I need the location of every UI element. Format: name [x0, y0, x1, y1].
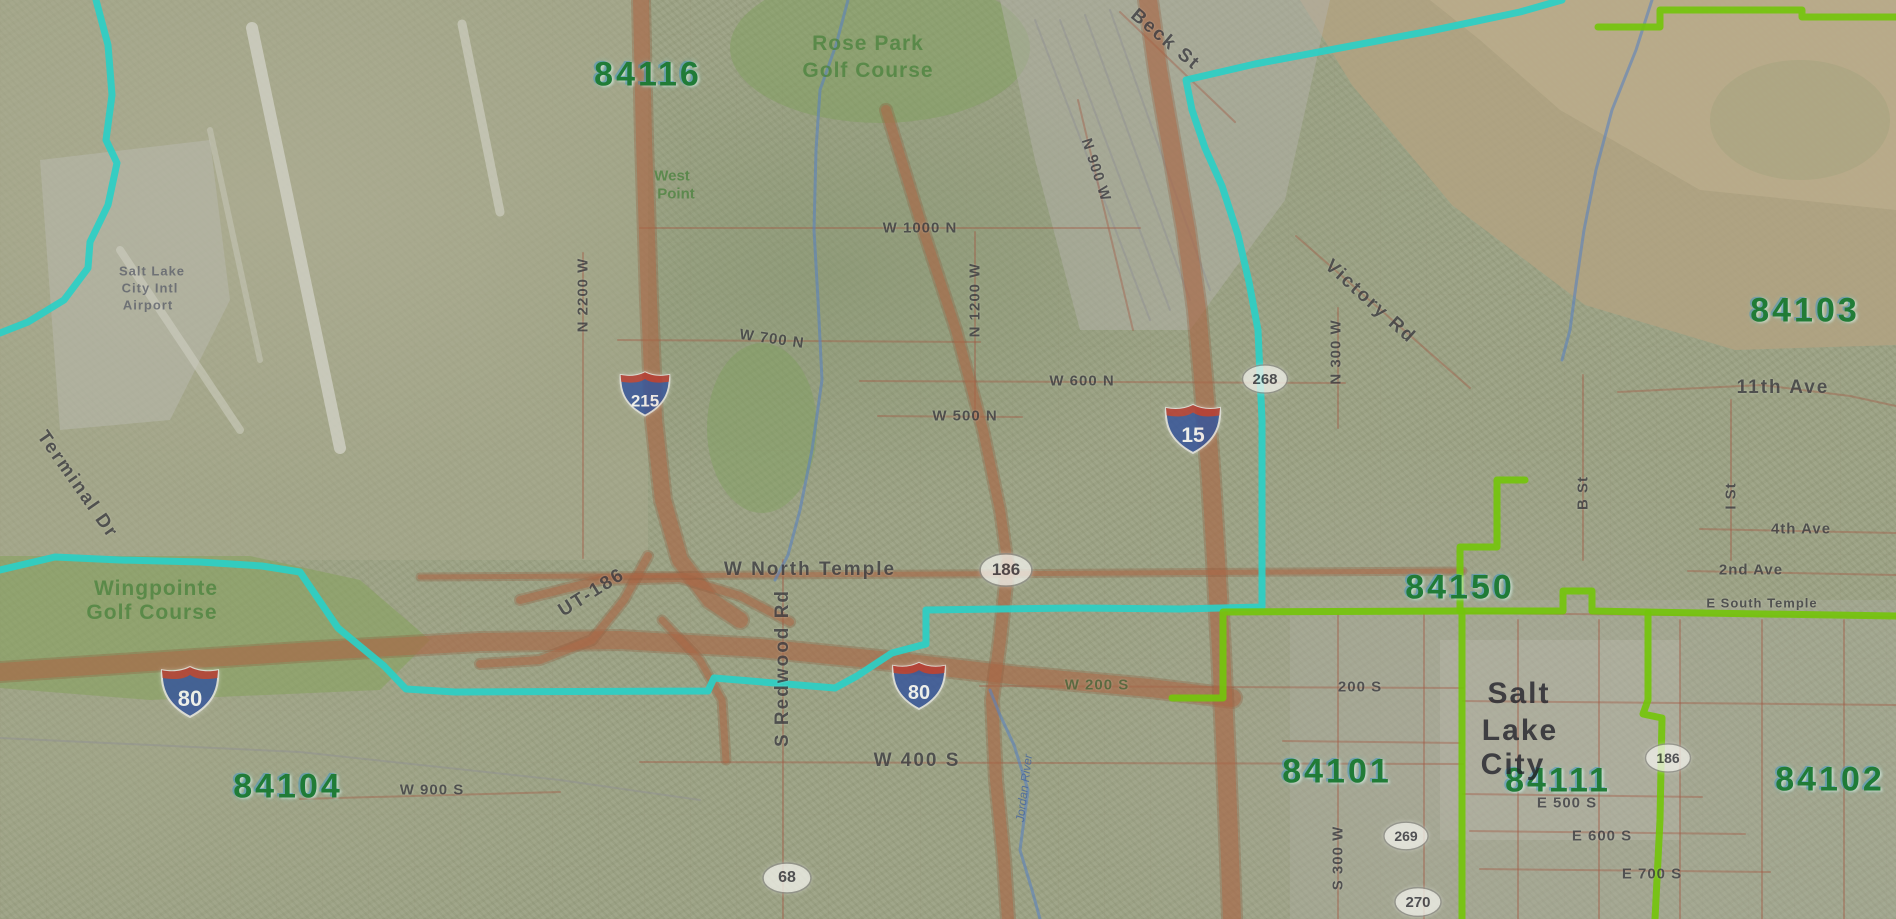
street-label-w-700-n: W 700 N — [738, 326, 805, 352]
street-label-2nd-ave: 2nd Ave — [1719, 562, 1783, 579]
city-label-salt: Salt — [1487, 677, 1550, 711]
state-route-shield-268-number: 268 — [1241, 364, 1289, 394]
street-label-w-900-s: W 900 S — [400, 782, 465, 799]
interstate-shield-80-west-number: 80 — [158, 664, 222, 726]
state-route-shield-270-number: 270 — [1394, 886, 1442, 918]
state-route-shield-270: 270 — [1394, 886, 1442, 918]
street-label-e-600-s: E 600 S — [1572, 828, 1632, 845]
street-label-e-500-s: E 500 S — [1537, 795, 1597, 812]
street-label-w-1000-n: W 1000 N — [883, 220, 958, 237]
street-label-w-400-s: W 400 S — [874, 750, 961, 772]
street-label-n-2200-w: N 2200 W — [575, 258, 592, 333]
zip-label-84103: 84103 — [1750, 292, 1860, 331]
street-label-11th-ave: 11th Ave — [1737, 377, 1830, 399]
state-route-shield-186-east-number: 186 — [1644, 743, 1692, 773]
interstate-shield-80-east: 80 — [890, 660, 948, 710]
street-label-e-south-temple: E South Temple — [1706, 596, 1817, 611]
street-label-n-300-w: N 300 W — [1328, 319, 1345, 384]
interstate-shield-80-east-number: 80 — [890, 660, 948, 718]
place-label-west-point-line2: Point — [657, 186, 695, 203]
interstate-shield-15: 15 — [1162, 402, 1224, 454]
street-label-i-st: I St — [1723, 482, 1740, 509]
street-label-w-north-temple: W North Temple — [724, 559, 896, 581]
street-label-s-300-w: S 300 W — [1330, 826, 1347, 891]
state-route-shield-186-east: 186 — [1644, 743, 1692, 773]
place-label-wingpointe-line1: Wingpointe — [94, 577, 218, 601]
state-route-shield-268: 268 — [1241, 364, 1289, 394]
street-label-beck-st: Beck St — [1126, 5, 1204, 76]
place-label-west-point-line1: West — [654, 168, 690, 185]
state-route-shield-186: 186 — [979, 552, 1033, 588]
zip-label-84150: 84150 — [1405, 569, 1515, 608]
city-label-lake: Lake — [1482, 714, 1558, 748]
zip-label-84116: 84116 — [594, 56, 702, 95]
street-label-n-1200-w: N 1200 W — [967, 263, 984, 338]
street-label-4th-ave: 4th Ave — [1771, 521, 1831, 538]
street-label-200-s: 200 S — [1338, 679, 1382, 696]
place-label-airport-line3: Airport — [123, 298, 173, 313]
state-route-shield-68: 68 — [762, 862, 812, 894]
state-route-shield-269: 269 — [1383, 821, 1429, 851]
street-label-n-900-w: N 900 W — [1078, 136, 1114, 203]
street-label-w-500-n: W 500 N — [932, 408, 997, 425]
interstate-shield-215: 215 — [617, 370, 673, 417]
place-label-airport-line1: Salt Lake — [119, 264, 185, 279]
street-label-e-700-s: E 700 S — [1622, 866, 1682, 883]
interstate-shield-80-west: 80 — [158, 664, 222, 718]
zip-label-84104: 84104 — [233, 768, 343, 807]
place-label-rose-park-line1: Rose Park — [812, 32, 924, 56]
interstate-shield-215-number: 215 — [617, 370, 673, 425]
zip-label-84102: 84102 — [1775, 761, 1885, 800]
place-label-wingpointe-line2: Golf Course — [86, 601, 217, 625]
street-label-ut-186: UT-186 — [555, 564, 630, 622]
place-label-rose-park-line2: Golf Course — [802, 59, 933, 83]
state-route-shield-68-number: 68 — [762, 862, 812, 894]
street-label-w-200-s: W 200 S — [1065, 677, 1130, 694]
street-label-s-redwood-rd: S Redwood Rd — [772, 589, 794, 747]
interstate-shield-15-number: 15 — [1162, 402, 1224, 462]
street-label-w-600-n: W 600 N — [1049, 373, 1114, 390]
map-labels-layer: 84116841038415084101841118410284104W 100… — [0, 0, 1896, 919]
state-route-shield-269-number: 269 — [1383, 821, 1429, 851]
map-canvas[interactable]: 84116841038415084101841118410284104W 100… — [0, 0, 1896, 919]
street-label-b-st: B St — [1575, 476, 1592, 510]
water-label-jordan-river: Jordan River — [1013, 753, 1035, 822]
street-label-terminal-dr: Terminal Dr — [32, 427, 122, 543]
place-label-airport-line2: City Intl — [122, 281, 179, 296]
city-label-city: City — [1481, 748, 1546, 782]
state-route-shield-186-number: 186 — [979, 552, 1033, 588]
zip-label-84101: 84101 — [1282, 753, 1392, 792]
